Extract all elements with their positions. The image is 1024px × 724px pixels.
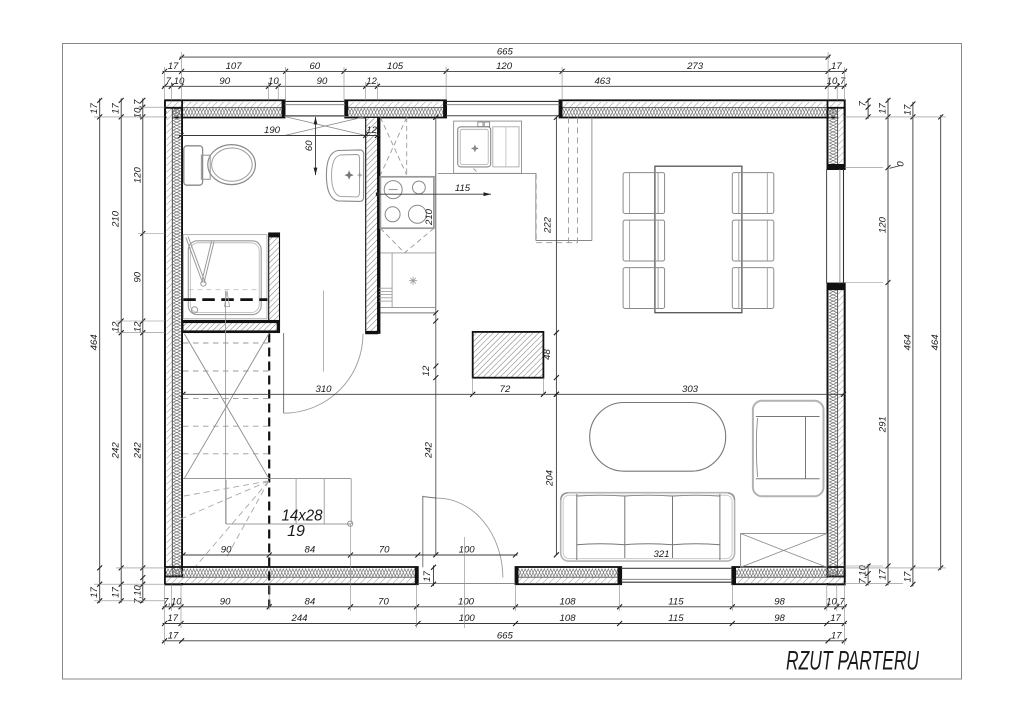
svg-text:17: 17: [830, 613, 841, 624]
svg-text:17: 17: [111, 103, 122, 114]
svg-text:17: 17: [168, 61, 179, 72]
svg-text:12: 12: [366, 125, 377, 136]
svg-text:10,7: 10,7: [827, 76, 846, 87]
svg-text:48: 48: [542, 349, 553, 360]
svg-text:464: 464: [89, 334, 100, 350]
svg-text:98: 98: [774, 596, 785, 607]
svg-text:19: 19: [287, 523, 305, 540]
svg-text:108: 108: [560, 596, 577, 607]
svg-text:17: 17: [111, 587, 122, 598]
svg-text:210: 210: [111, 210, 122, 228]
svg-text:72: 72: [500, 384, 511, 395]
svg-text:RZUT PARTERU: RZUT PARTERU: [786, 646, 919, 676]
svg-text:12: 12: [132, 321, 143, 332]
svg-text:90: 90: [132, 271, 143, 282]
svg-text:17: 17: [878, 569, 889, 580]
svg-text:70: 70: [379, 545, 390, 556]
svg-text:120: 120: [496, 61, 513, 72]
svg-text:115: 115: [668, 596, 684, 607]
svg-text:100: 100: [458, 596, 475, 607]
svg-text:665: 665: [497, 47, 514, 58]
svg-text:100: 100: [459, 613, 476, 624]
svg-text:310: 310: [315, 384, 332, 395]
svg-text:90: 90: [220, 596, 231, 607]
svg-text:17: 17: [831, 630, 842, 641]
svg-text:291: 291: [878, 416, 889, 433]
svg-text:60: 60: [304, 140, 315, 151]
svg-text:12: 12: [421, 365, 432, 376]
svg-text:242: 242: [132, 442, 143, 460]
svg-text:17: 17: [878, 103, 889, 114]
svg-text:464: 464: [930, 334, 941, 350]
svg-text:10,7: 10,7: [132, 99, 143, 118]
svg-text:7,10: 7,10: [166, 76, 185, 87]
svg-text:222: 222: [543, 216, 554, 234]
svg-text:7,10: 7,10: [163, 596, 182, 607]
svg-text:10: 10: [268, 76, 279, 87]
svg-text:17: 17: [902, 104, 913, 115]
svg-text:120: 120: [878, 216, 889, 233]
svg-text:7: 7: [858, 101, 869, 107]
svg-text:100: 100: [459, 545, 476, 556]
svg-text:464: 464: [902, 334, 913, 350]
svg-text:84: 84: [305, 596, 316, 607]
svg-text:10,7: 10,7: [826, 596, 845, 607]
svg-text:244: 244: [290, 613, 307, 624]
svg-text:17: 17: [89, 103, 100, 114]
svg-text:60: 60: [309, 61, 320, 72]
svg-text:84: 84: [305, 545, 316, 556]
svg-text:115: 115: [455, 183, 471, 194]
svg-text:303: 303: [682, 384, 699, 395]
svg-text:12: 12: [111, 321, 122, 332]
svg-text:90: 90: [219, 76, 230, 87]
svg-text:12: 12: [366, 76, 377, 87]
svg-text:17: 17: [168, 630, 179, 641]
svg-text:17: 17: [831, 61, 842, 72]
svg-text:242: 242: [424, 441, 435, 459]
svg-text:242: 242: [111, 442, 122, 460]
svg-text:17: 17: [89, 587, 100, 598]
svg-text:204: 204: [545, 470, 556, 487]
svg-text:463: 463: [594, 76, 611, 87]
svg-text:98: 98: [774, 613, 785, 624]
svg-text:14x28: 14x28: [282, 508, 323, 525]
svg-text:120: 120: [132, 167, 143, 184]
svg-text:17: 17: [167, 613, 178, 624]
svg-text:273: 273: [686, 61, 704, 72]
svg-text:0: 0: [896, 161, 907, 167]
svg-text:210: 210: [424, 208, 435, 226]
svg-text:90: 90: [317, 76, 328, 87]
svg-text:90: 90: [221, 545, 232, 556]
svg-text:190: 190: [264, 125, 281, 136]
svg-text:321: 321: [653, 549, 669, 560]
svg-text:107: 107: [226, 61, 243, 72]
svg-text:665: 665: [497, 630, 514, 641]
svg-text:108: 108: [560, 613, 577, 624]
svg-text:17: 17: [902, 571, 913, 582]
svg-text:105: 105: [387, 61, 404, 72]
svg-text:17: 17: [422, 571, 433, 582]
svg-text:70: 70: [378, 596, 389, 607]
svg-text:7,10: 7,10: [858, 565, 869, 584]
svg-text:115: 115: [668, 613, 684, 624]
